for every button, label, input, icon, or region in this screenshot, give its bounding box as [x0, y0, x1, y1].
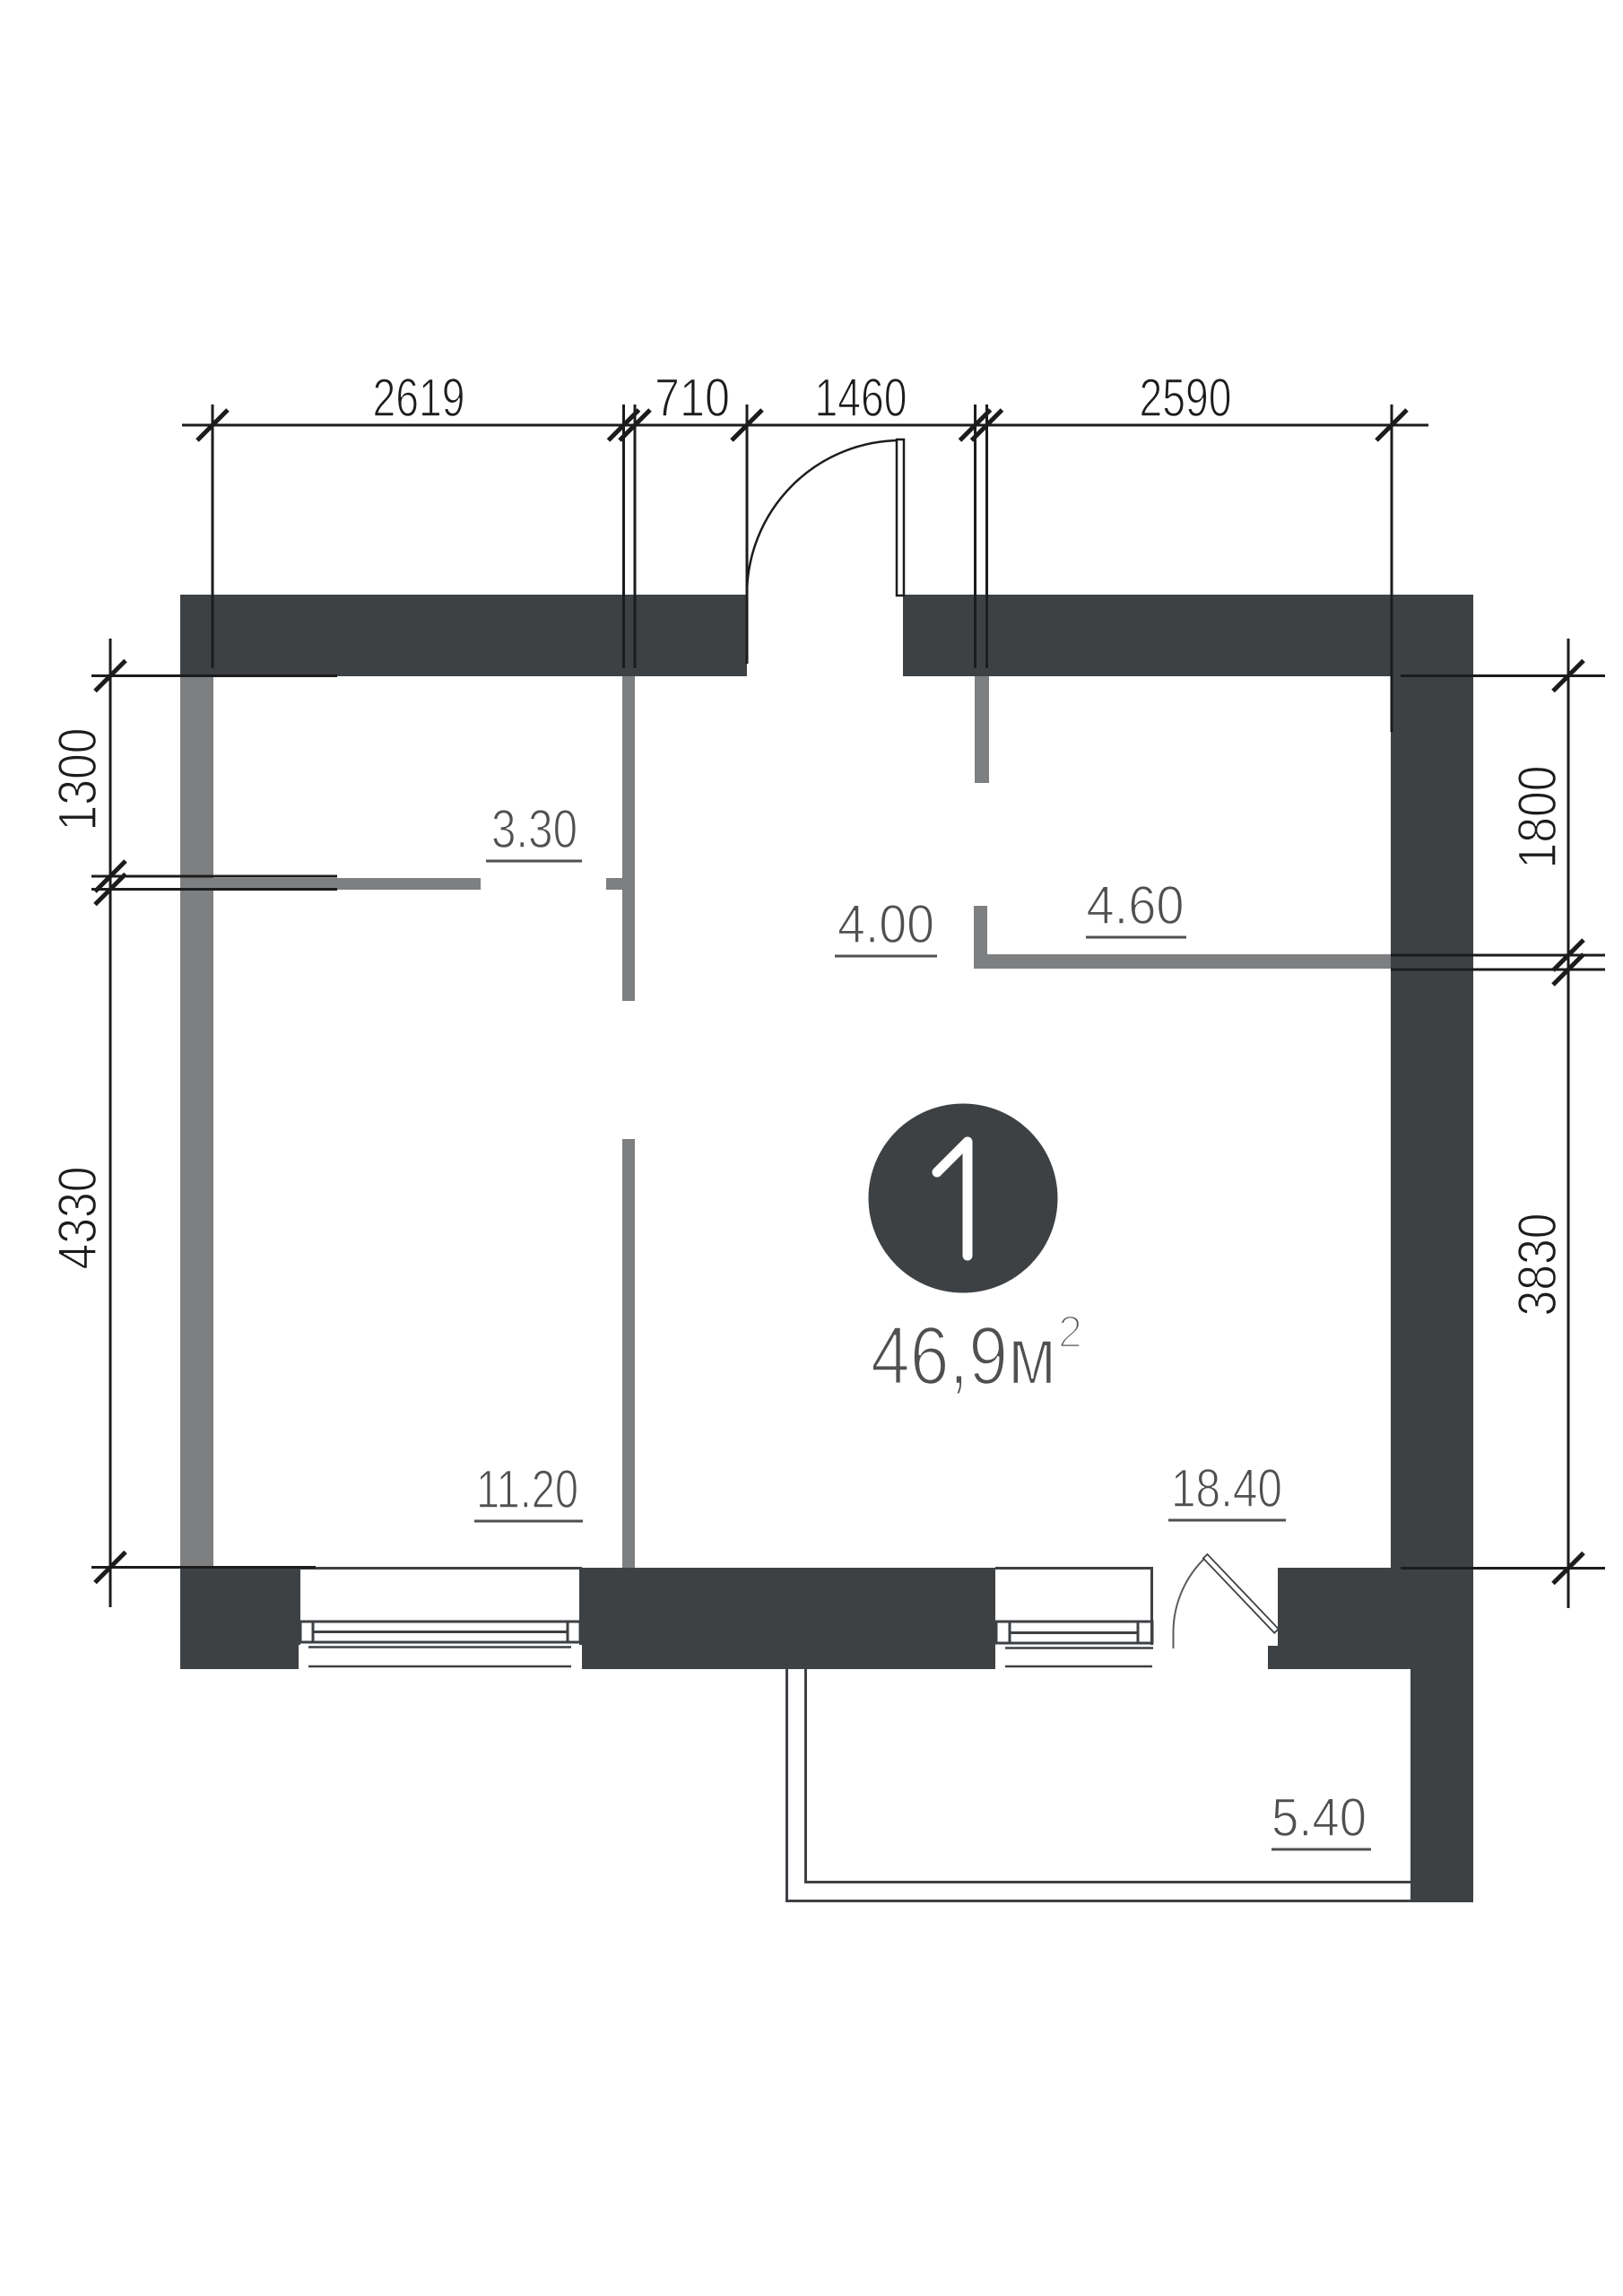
svg-text:1460: 1460	[815, 368, 907, 428]
svg-text:4330: 4330	[48, 1167, 108, 1270]
svg-text:4.60: 4.60	[1087, 875, 1185, 935]
svg-text:18.40: 18.40	[1171, 1458, 1282, 1518]
svg-text:3.30: 3.30	[491, 799, 577, 859]
svg-text:2: 2	[1058, 1307, 1082, 1357]
svg-text:4.00: 4.00	[838, 894, 934, 954]
svg-text:2619: 2619	[373, 368, 465, 428]
svg-text:11.20: 11.20	[476, 1459, 578, 1519]
svg-text:1300: 1300	[48, 728, 108, 831]
svg-text:46,9м: 46,9м	[871, 1310, 1056, 1402]
svg-text:710: 710	[655, 368, 730, 428]
svg-text:3830: 3830	[1507, 1213, 1567, 1317]
svg-text:2590: 2590	[1140, 368, 1232, 428]
svg-text:1800: 1800	[1507, 766, 1567, 869]
svg-text:5.40: 5.40	[1271, 1787, 1367, 1848]
